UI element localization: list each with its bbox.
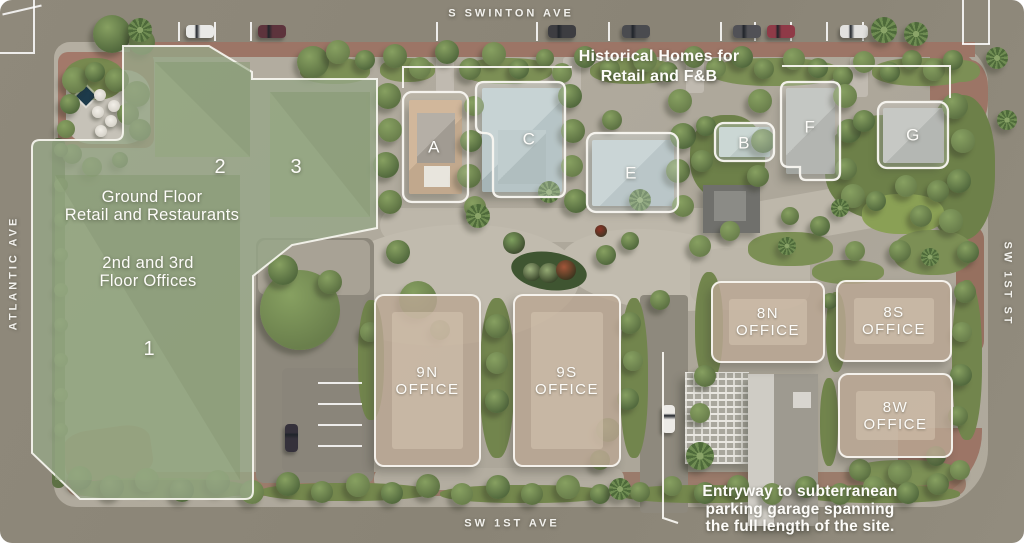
labels-layer: S SWINTON AVE SW 1ST AVE ATLANTIC AVE SW… — [0, 0, 1024, 543]
street-label-top: S SWINTON AVE — [448, 9, 574, 20]
ground-floor-note: Ground Floor Retail and Restaurants — [65, 188, 239, 224]
historic-home-label-a: A — [428, 139, 440, 156]
ground-floor-note-line1: Ground Floor — [65, 188, 239, 206]
historic-home-label-c: C — [523, 131, 536, 148]
garage-entry-note-line2: parking garage spanning — [702, 500, 897, 518]
green-building-number-2: 2 — [214, 157, 225, 177]
street-label-left: ATLANTIC AVE — [9, 216, 20, 331]
garage-entry-note-line1: Entryway to subterranean — [702, 483, 897, 501]
historic-home-label-e: E — [625, 165, 637, 182]
upper-floor-note-line2: Floor Offices — [99, 272, 196, 290]
garage-entry-note: Entryway to subterranean parking garage … — [702, 483, 897, 536]
historic-home-label-f: F — [805, 119, 816, 136]
street-label-bottom: SW 1ST AVE — [464, 519, 559, 530]
green-building-number-3: 3 — [290, 157, 301, 177]
historic-home-label-b: B — [738, 135, 750, 152]
upper-floor-note-line1: 2nd and 3rd — [99, 254, 196, 272]
garage-entry-note-line3: the full length of the site. — [702, 518, 897, 536]
upper-floor-note: 2nd and 3rd Floor Offices — [99, 254, 196, 290]
historic-home-label-g: G — [906, 127, 920, 144]
ground-floor-note-line2: Retail and Restaurants — [65, 206, 239, 224]
green-building-number-1: 1 — [143, 339, 154, 359]
street-label-right: SW 1ST ST — [1002, 241, 1013, 326]
historic-homes-note: Historical Homes for Retail and F&B — [579, 47, 739, 87]
site-plan-map: 9N OFFICE 9S OFFICE 8N OFFICE 8S OFFICE … — [0, 0, 1024, 543]
historic-homes-note-line1: Historical Homes for — [579, 47, 739, 67]
historic-homes-note-line2: Retail and F&B — [579, 67, 739, 87]
